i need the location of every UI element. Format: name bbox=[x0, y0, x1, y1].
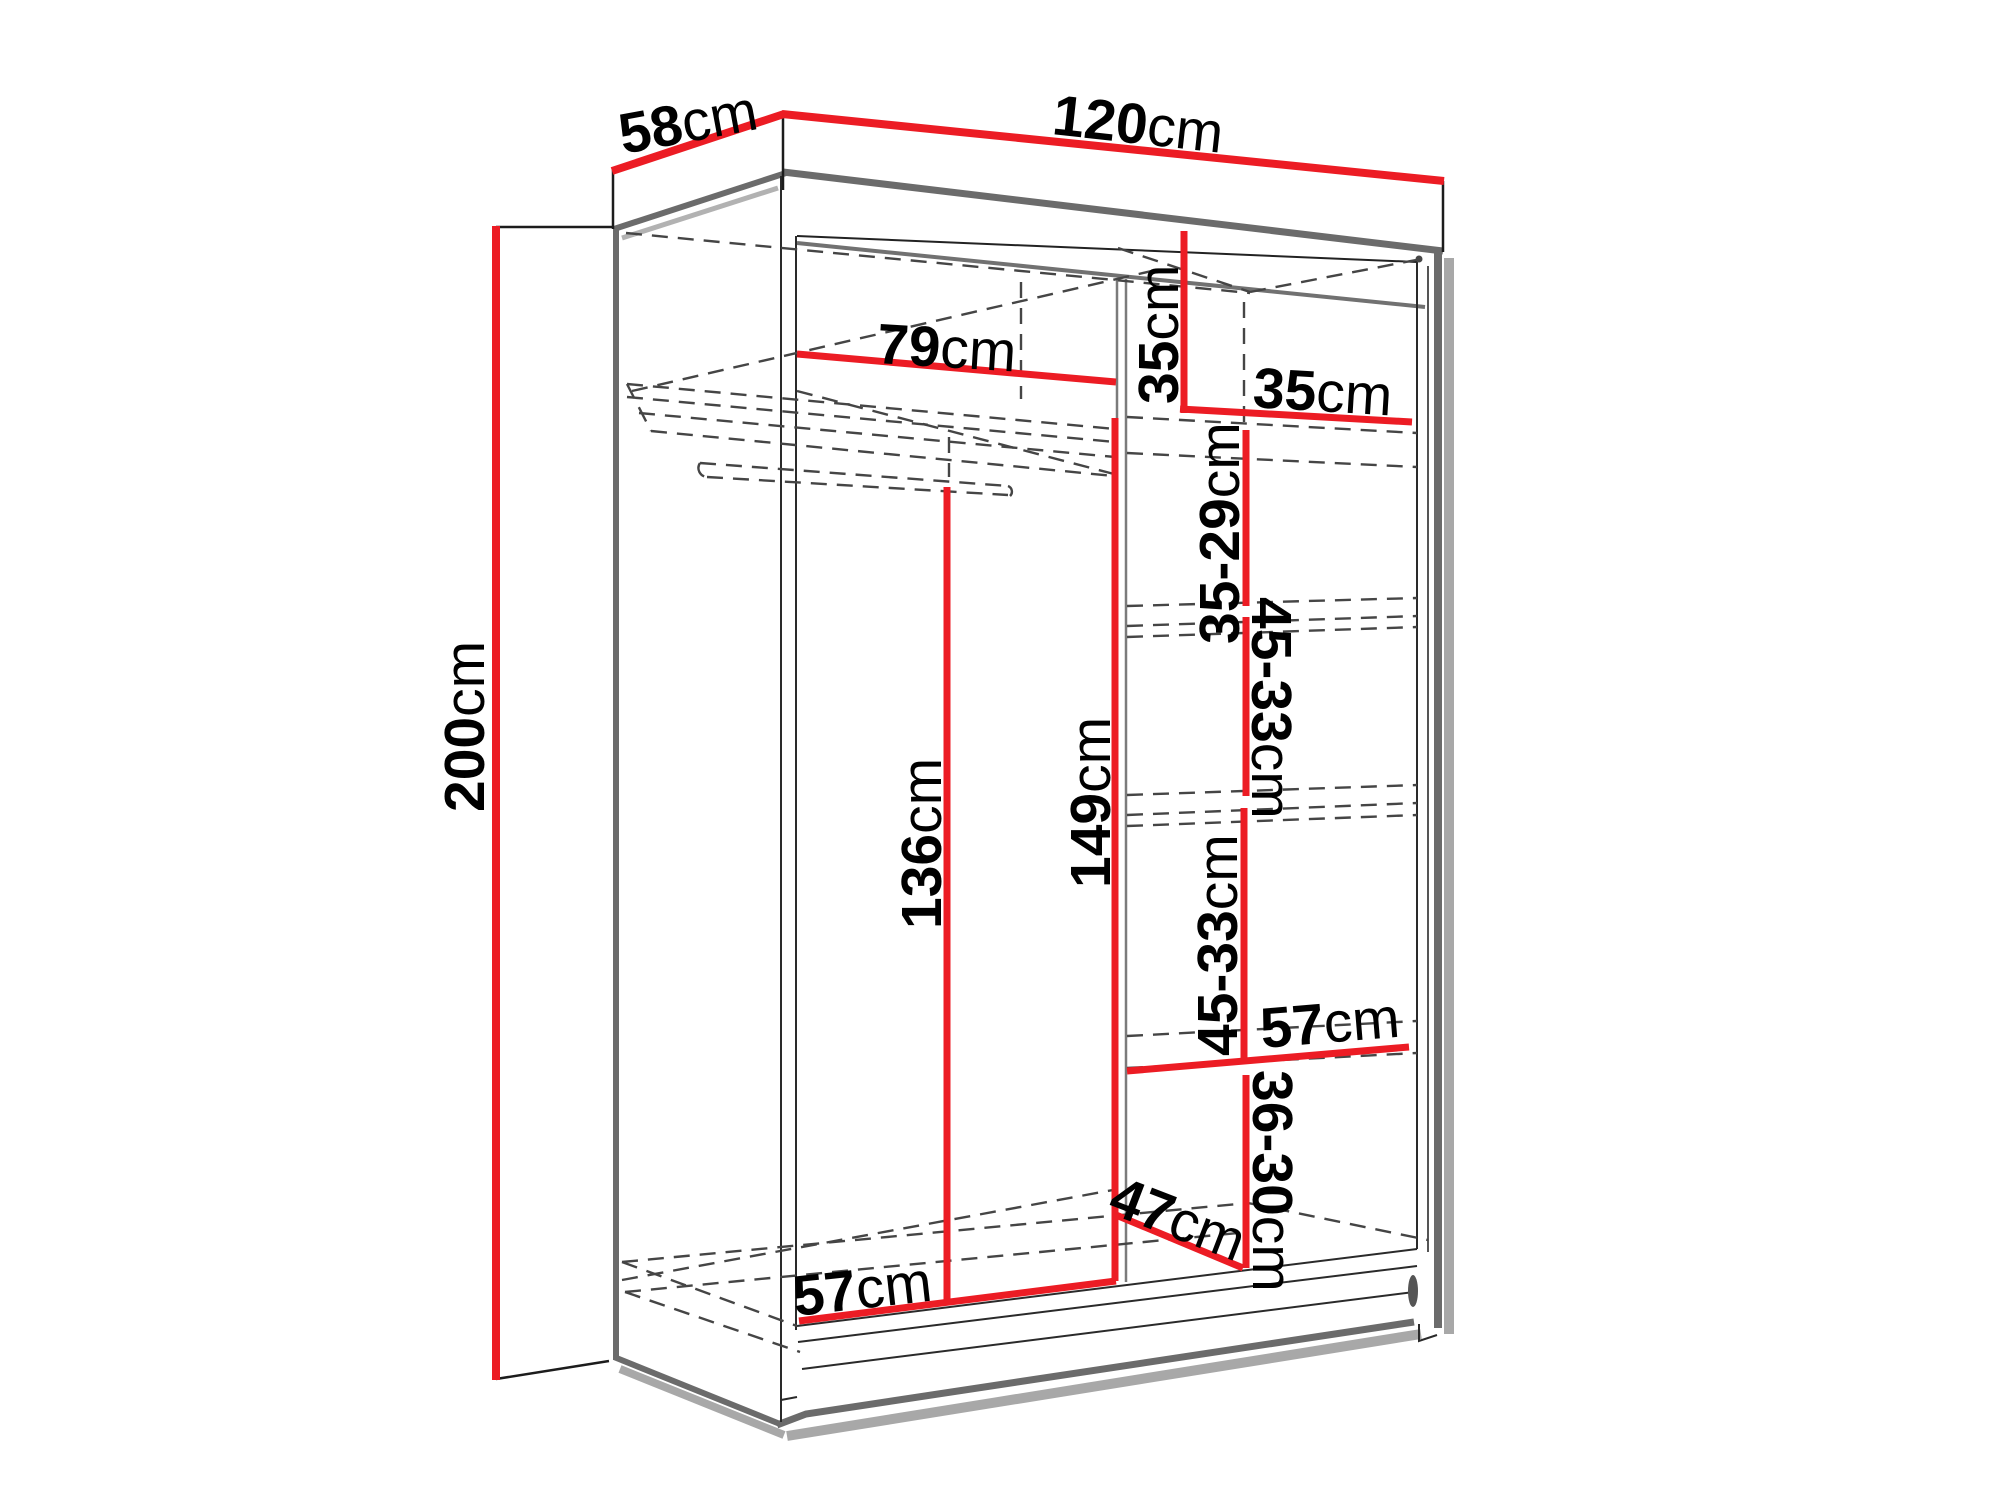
svg-text:149cm: 149cm bbox=[1059, 717, 1123, 888]
svg-text:45-33cm: 45-33cm bbox=[1239, 597, 1303, 819]
svg-text:200cm: 200cm bbox=[433, 641, 497, 812]
svg-text:45-33cm: 45-33cm bbox=[1186, 834, 1250, 1056]
svg-text:79cm: 79cm bbox=[875, 312, 1018, 384]
svg-text:35cm: 35cm bbox=[1251, 356, 1394, 428]
svg-text:136cm: 136cm bbox=[890, 758, 954, 929]
svg-text:35cm: 35cm bbox=[1127, 265, 1191, 404]
svg-text:36-30cm: 36-30cm bbox=[1240, 1070, 1304, 1292]
svg-text:57cm: 57cm bbox=[1258, 986, 1402, 1061]
